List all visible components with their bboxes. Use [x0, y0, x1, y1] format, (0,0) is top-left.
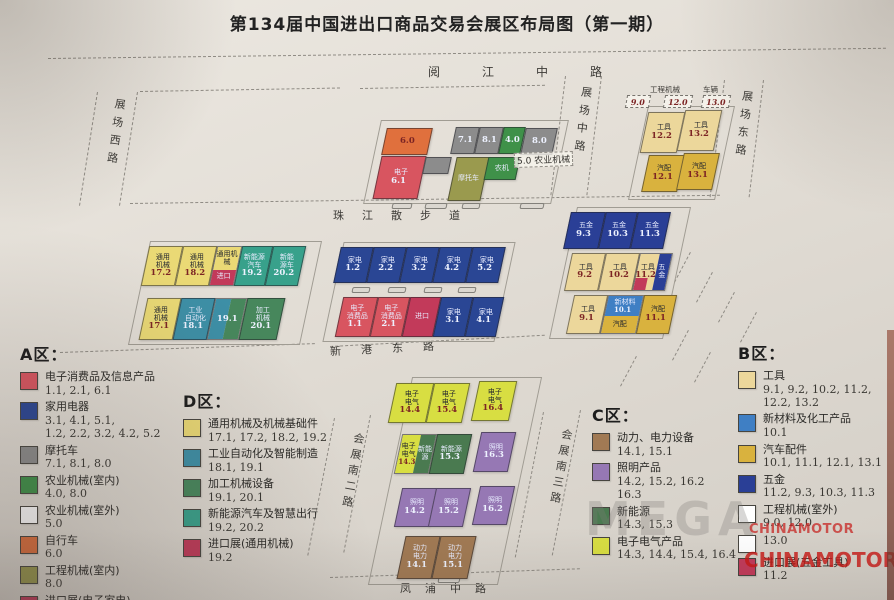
- legend-halls: 19.2, 20.2: [208, 521, 318, 534]
- legend-halls: 10.1, 11.1, 12.1, 13.1: [763, 456, 882, 469]
- legend-halls: 19.2: [208, 551, 294, 564]
- legend-item: 加工机械设备19.1, 20.1: [183, 478, 351, 504]
- legend-label: 进口展(电子家电): [45, 595, 131, 600]
- hall-num: 4.0: [505, 136, 520, 145]
- legend-item: 进口展(电子家电): [20, 595, 185, 600]
- page-title: 第134届中国进出口商品交易会展区布局图（第一期）: [0, 10, 894, 35]
- legend-label: 家用电器: [45, 401, 160, 414]
- hall-num: 3.1: [445, 316, 460, 325]
- hall-10-1-autoparts: 汽配: [601, 316, 639, 333]
- hall-num: 8.1: [482, 136, 497, 145]
- hall-num: 4.1: [476, 316, 491, 325]
- hall-num: 6.0: [400, 137, 415, 146]
- legend-item: 工业自动化及智能制造18.1, 19.1: [183, 448, 351, 474]
- hall-num: 17.2: [150, 269, 171, 278]
- legend-swatch-general-mach: [183, 419, 201, 437]
- legend-label: 自行车: [45, 535, 78, 548]
- hall-name: 进口: [216, 273, 230, 281]
- legend-swatch-electronics: [20, 372, 38, 390]
- tag-num: 12.0: [667, 97, 688, 107]
- legend-swatch-autoparts: [738, 445, 756, 463]
- road-dash: [360, 85, 545, 89]
- hall-num: 2.2: [378, 264, 393, 273]
- hall-name: 电子 电气: [488, 389, 502, 405]
- hall-11-2-import: [633, 278, 648, 290]
- legend-swatch-processing: [183, 479, 201, 497]
- hall-6-0: 6.0: [381, 128, 433, 155]
- road-label-zhanchang-west: 展场西路: [102, 97, 128, 171]
- legend-swatch-electric: [592, 537, 610, 555]
- outdoor-tag-13-0: 13.0: [701, 95, 731, 108]
- legend-swatch-new-energy: [592, 507, 610, 525]
- hall-num: 9.3: [576, 230, 591, 239]
- hall-name: 动力 电力: [412, 545, 426, 561]
- hall-name: 五金: [656, 264, 668, 280]
- legend-item: 动力、电力设备14.1, 15.1: [592, 432, 742, 458]
- legend-halls: 14.3, 15.3: [617, 518, 673, 531]
- hall-num: 10.2: [608, 271, 629, 280]
- hall-name: 农机: [495, 165, 509, 173]
- legend-swatch-nev: [183, 509, 201, 527]
- legend-halls: 9.1, 9.2, 10.2, 11.2, 12.2, 13.2: [763, 383, 871, 410]
- legend-halls: 18.1, 19.1: [208, 461, 318, 474]
- legend-label: 农业机械(室内): [45, 475, 120, 488]
- road-dash: [694, 352, 711, 382]
- road-dash: [672, 330, 689, 360]
- legend-label: 进口展(五金工具): [763, 557, 849, 570]
- hall-num: 18.2: [184, 269, 205, 278]
- hall-name: 电子 电气: [402, 443, 416, 459]
- hall-num: 6.1: [391, 177, 406, 186]
- outdoor-agri-note: 5.0 农业机械: [514, 151, 574, 168]
- legend-swatch-power: [592, 433, 610, 451]
- hall-num: 14.4: [399, 406, 420, 415]
- hall-name: 电子 电气: [405, 391, 419, 407]
- hall-name: 工业 自动化: [184, 307, 205, 323]
- legend-item: 五金11.2, 9.3, 10.3, 11.3: [738, 474, 890, 500]
- legend-swatch-tool: [738, 371, 756, 389]
- legend-label: 电子消费品及信息产品: [45, 371, 155, 384]
- legend-item: 进口展(五金工具)11.2: [738, 557, 890, 583]
- legend-label: 工业自动化及智能制造: [208, 448, 318, 461]
- gate-marker: [424, 203, 447, 209]
- legend-label: 农业机械(室外): [45, 505, 120, 518]
- legend-swatch-motorcycle: [20, 446, 38, 464]
- legend-halls: 3.1, 4.1, 5.1, 1.2, 2.2, 3.2, 4.2, 5.2: [45, 414, 160, 441]
- outdoor-tag-12-0: 12.0: [663, 95, 693, 108]
- road-dash: [740, 312, 757, 342]
- legend-title-b: B区：: [738, 340, 890, 364]
- hall-num: 2.1: [381, 320, 396, 329]
- legend-label: 新材料及化工产品: [763, 413, 851, 426]
- legend-swatch-agri-out: [20, 506, 38, 524]
- hall-num: 16.2: [482, 505, 503, 514]
- hall-name: 新能 源车: [279, 254, 293, 270]
- legend-item: 新能源14.3, 15.3: [592, 506, 742, 532]
- hall-num: 14.3: [398, 458, 415, 465]
- hall-name: 进口: [415, 313, 429, 321]
- legend-item: 自行车6.0: [20, 535, 185, 561]
- legend-item: 新能源汽车及智慧出行19.2, 20.2: [183, 508, 351, 534]
- gate-marker: [391, 203, 412, 209]
- gate-marker: [387, 287, 406, 293]
- legend-item: 工程机械(室内)8.0: [20, 565, 185, 591]
- legend-halls: 6.0: [45, 547, 78, 560]
- legend-zone-d: D区： 通用机械及机械基础件17.1, 17.2, 18.2, 19.2 工业自…: [183, 388, 351, 568]
- hall-num: 13.1: [687, 171, 708, 180]
- hall-name: 新能 源: [418, 446, 432, 462]
- legend-item: 通用机械及机械基础件17.1, 17.2, 18.2, 19.2: [183, 418, 351, 444]
- legend-item: 电子消费品及信息产品1.1, 2.1, 6.1: [20, 371, 185, 397]
- hall-num: 12.2: [651, 132, 672, 141]
- legend-label: 动力、电力设备: [617, 432, 694, 445]
- road-label-promenade: 珠江散步道: [333, 207, 478, 223]
- legend-item: 工具9.1, 9.2, 10.2, 11.2, 12.2, 13.2: [738, 370, 890, 409]
- legend-halls: 8.0: [45, 577, 120, 590]
- legend-title-d: D区：: [183, 388, 351, 412]
- hall-num: 4.2: [444, 264, 459, 273]
- road-dash: [620, 356, 637, 386]
- hall-num: 16.4: [482, 404, 503, 413]
- legend-item: 新材料及化工产品10.1: [738, 413, 890, 439]
- legend-halls: 7.1, 8.1, 8.0: [45, 457, 111, 470]
- legend-label: 工程机械(室外): [763, 504, 838, 517]
- legend-label: 新能源汽车及智慧出行: [208, 508, 318, 521]
- venue-map-photo: 第134届中国进出口商品交易会展区布局图（第一期） 阅江中路 展场西路 展场中路…: [0, 0, 894, 600]
- hall-num: 15.4: [436, 406, 457, 415]
- legend-item: 家用电器3.1, 4.1, 5.1, 1.2, 2.2, 3.2, 4.2, 5…: [20, 401, 185, 440]
- legend-halls: 5.0: [45, 517, 120, 530]
- hall-num: 15.1: [442, 561, 463, 570]
- legend-halls: 9.0, 12.0: [763, 516, 838, 529]
- hall-num: 9.1: [579, 314, 594, 323]
- legend-zone-a: A区： 电子消费品及信息产品1.1, 2.1, 6.1 家用电器3.1, 4.1…: [20, 341, 185, 600]
- road-dash: [718, 292, 735, 322]
- legend-item: 摩托车7.1, 8.1, 8.0: [20, 445, 185, 471]
- hall-num: 11.1: [645, 314, 666, 323]
- legend-label: 汽车配件: [763, 444, 882, 457]
- gate-marker: [461, 203, 480, 209]
- legend-swatch-eng-out: [738, 505, 756, 523]
- legend-swatch-lighting: [592, 463, 610, 481]
- hall-num: 18.1: [182, 322, 203, 331]
- legend-halls: 19.1, 20.1: [208, 491, 274, 504]
- hall-num: 11.3: [639, 230, 660, 239]
- legend-swatch-material: [738, 414, 756, 432]
- hall-num: 20.2: [273, 269, 294, 278]
- legend-halls: 14.3, 14.4, 15.4, 16.4: [617, 548, 736, 561]
- hall-name: 通用 机械: [156, 254, 170, 270]
- hall-num: 1.1: [347, 320, 362, 329]
- legend-item: 进口展(通用机械)19.2: [183, 538, 351, 564]
- hall-num: 7.1: [458, 136, 473, 145]
- hall-num: 9.2: [577, 271, 592, 280]
- hall-num: 19.1: [217, 315, 238, 324]
- legend-item: 电子电气产品14.3, 14.4, 15.4, 16.4: [592, 536, 742, 562]
- outdoor-veh-label: 车辆: [703, 84, 718, 95]
- legend-item: 农业机械(室外)5.0: [20, 505, 185, 531]
- hall-num: 10.1: [614, 306, 631, 313]
- legend-label: 通用机械及机械基础件: [208, 418, 327, 431]
- legend-label: 加工机械设备: [208, 478, 274, 491]
- hall-num: 5.2: [477, 264, 492, 273]
- hall-num: 15.2: [438, 507, 459, 516]
- road-label-zhanchang-east: 展场东路: [731, 89, 756, 162]
- hall-num: 20.1: [250, 322, 271, 331]
- legend-zone-c: C区： 动力、电力设备14.1, 15.1 照明产品14.2, 15.2, 16…: [592, 402, 742, 566]
- hall-11-1: 汽配11.1: [636, 295, 677, 334]
- legend-swatch-obscured: [738, 535, 756, 553]
- hall-small: [422, 157, 452, 174]
- legend-item: 农业机械(室内)4.0, 8.0: [20, 475, 185, 501]
- photo-edge-artifact: [887, 330, 894, 600]
- hall-name: 通用机械: [216, 251, 239, 267]
- hall-name: 摩托车: [458, 175, 479, 183]
- gate-marker: [519, 203, 544, 209]
- road-label-zhanchang-center: 展场中路: [570, 85, 595, 158]
- hall-name: 电子 电气: [442, 391, 456, 407]
- legend-label: 摩托车: [45, 445, 111, 458]
- legend-halls: 14.1, 15.1: [617, 445, 694, 458]
- legend-halls: 13.0: [763, 534, 788, 547]
- legend-swatch-appliance: [20, 402, 38, 420]
- legend-swatch-agri-in: [20, 476, 38, 494]
- hall-num: 13.2: [688, 130, 709, 139]
- hall-num: 12.1: [652, 173, 673, 182]
- hall-name: 电子 消费品: [380, 305, 401, 321]
- legend-item: 13.0: [738, 534, 890, 553]
- tag-num: 13.0: [705, 97, 726, 107]
- legend-swatch-hardware: [738, 475, 756, 493]
- hall-name: 通用 机械: [154, 307, 168, 323]
- road-dash: [140, 88, 340, 92]
- legend-label: 新能源: [617, 506, 673, 519]
- outdoor-eng-label: 工程机械: [650, 84, 680, 95]
- hall-num: 14.1: [406, 561, 427, 570]
- legend-halls: 17.1, 17.2, 18.2, 19.2: [208, 431, 327, 444]
- hall-num: 19.2: [241, 269, 262, 278]
- hall-num: 16.3: [483, 451, 504, 460]
- hall-num: 1.2: [345, 264, 360, 273]
- gate-marker: [423, 287, 442, 293]
- legend-label: 工程机械(室内): [45, 565, 120, 578]
- hall-num: 10.3: [607, 230, 628, 239]
- legend-halls: 4.0, 8.0: [45, 487, 120, 500]
- road-west-line: [79, 92, 98, 206]
- legend-label: 照明产品: [617, 462, 704, 475]
- road-north-line: [48, 48, 886, 59]
- legend-item: 汽车配件10.1, 11.1, 12.1, 13.1: [738, 444, 890, 470]
- legend-halls: 11.2: [763, 569, 849, 582]
- road-dash: [696, 272, 713, 302]
- gate-marker: [457, 287, 476, 293]
- hall-num: 15.3: [439, 453, 460, 462]
- legend-swatch-import-d: [183, 539, 201, 557]
- legend-label: 五金: [763, 474, 875, 487]
- legend-title-c: C区：: [592, 402, 742, 426]
- hall-name: 加工 机械: [256, 307, 270, 323]
- legend-swatch-bicycle: [20, 536, 38, 554]
- legend-swatch-eng-in: [20, 566, 38, 584]
- hall-num: 14.2: [404, 507, 425, 516]
- legend-zone-b: B区： 工具9.1, 9.2, 10.2, 11.2, 12.2, 13.2 新…: [738, 340, 890, 587]
- outdoor-tag-9-0: 9.0: [625, 95, 651, 108]
- legend-item: 照明产品14.2, 15.2, 16.2 16.3: [592, 462, 742, 501]
- hall-6-1: 电子6.1: [372, 156, 426, 199]
- legend-title-a: A区：: [20, 341, 185, 365]
- legend-label: 工具: [763, 370, 871, 383]
- hall-num: 3.2: [411, 264, 426, 273]
- legend-halls: 1.1, 2.1, 6.1: [45, 384, 155, 397]
- legend-label: 电子电气产品: [617, 536, 736, 549]
- hall-num: 8.0: [532, 137, 547, 146]
- hall-name: 通用 机械: [190, 254, 204, 270]
- legend-swatch-import-a: [20, 596, 38, 600]
- road-label-huizhan-south-3: 会展南三路: [545, 427, 575, 509]
- hall-10-1-material: 新材料10.1: [605, 296, 643, 316]
- hall-19-2-import: 进口: [210, 270, 236, 285]
- legend-swatch-industrial-auto: [183, 449, 201, 467]
- hall-name: 汽配: [613, 321, 627, 329]
- legend-item: 工程机械(室外)9.0, 12.0: [738, 504, 890, 530]
- hall-num: 17.1: [148, 322, 169, 331]
- tag-num: 9.0: [630, 97, 646, 107]
- legend-halls: 14.2, 15.2, 16.2 16.3: [617, 475, 704, 502]
- legend-swatch-import-b: [738, 558, 756, 576]
- gate-marker: [351, 287, 370, 293]
- legend-halls: 10.1: [763, 426, 851, 439]
- road-label-yuejiang: 阅江中路: [428, 63, 644, 80]
- hall-name: 动力 电力: [448, 545, 462, 561]
- legend-label: 进口展(通用机械): [208, 538, 294, 551]
- hall-name: 电子 消费品: [347, 305, 368, 321]
- hall-name: 新能源 汽车: [244, 254, 265, 270]
- legend-halls: 11.2, 9.3, 10.3, 11.3: [763, 486, 875, 499]
